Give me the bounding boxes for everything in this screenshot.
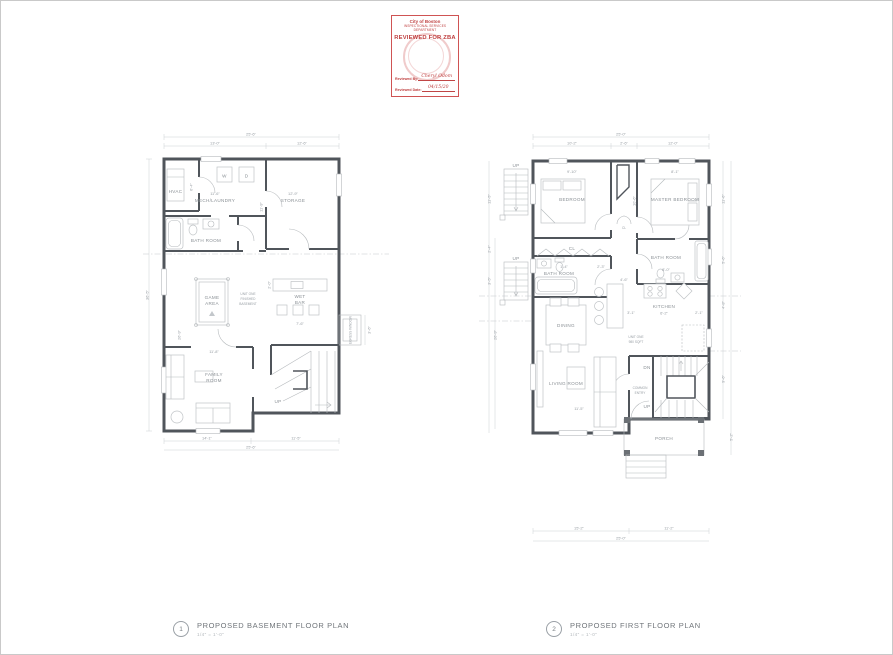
dim-top-3: 12'-0"	[668, 141, 679, 146]
dim-hvac: 6'-4"	[189, 183, 194, 191]
left-bathroom-fixtures	[535, 258, 577, 294]
stamp-reviewed-by-row: Reviewed By: Cheryl Odom	[395, 74, 455, 81]
side-stairs-up-label-2: UP	[513, 256, 520, 261]
toilet	[189, 225, 197, 235]
dim-egress: 3'-6"	[367, 326, 372, 334]
window-icon	[593, 431, 613, 436]
stairs-dn-label: DN	[643, 365, 650, 370]
first-floor-plan: 25'-0" 10'-2" 2'-6" 12'-0" 9'-10" BEDROO…	[479, 129, 741, 559]
dim-bottom-left: 14'-1"	[202, 436, 213, 441]
media-console	[537, 351, 543, 407]
room-label-bathroom: BATH ROOM	[191, 238, 221, 243]
dim-bottom-total: 25'-0"	[616, 536, 627, 541]
window-icon	[531, 184, 536, 204]
room-label-wetbar-2: BAR	[295, 300, 306, 305]
porch-post	[698, 417, 704, 423]
dim-bedroom: 9'-10"	[567, 169, 578, 174]
dim-right-5: 5'-2"	[729, 433, 734, 441]
dim-bottom-right: 11'-5"	[291, 436, 301, 441]
basement-note-2: FINISHED	[241, 297, 257, 301]
porch-post	[624, 417, 630, 423]
egress-window-label: EGRESS WINDOW	[349, 316, 353, 344]
porch	[624, 417, 704, 478]
corner-cabinet	[676, 283, 692, 299]
stool	[595, 302, 604, 311]
toilet-tank	[656, 279, 665, 283]
stool	[595, 288, 604, 297]
room-label-bathroom-left: BATH ROOM	[544, 271, 574, 276]
stove	[644, 284, 666, 298]
porch-label: PORCH	[655, 436, 673, 441]
bath-sink	[671, 273, 684, 282]
right-bathroom-fixtures	[656, 241, 708, 283]
dim-top-2: 2'-6"	[620, 141, 628, 146]
window-icon	[531, 364, 536, 390]
window-icon	[337, 174, 342, 196]
window-icon	[679, 159, 695, 164]
window-icon	[645, 159, 659, 164]
window-icon	[549, 159, 567, 164]
hvac-unit	[167, 169, 184, 201]
stool	[595, 316, 604, 325]
post	[500, 215, 505, 220]
dim-kitchen-left: 3'-1"	[627, 310, 635, 315]
dim-bath-right: 8'-0"	[662, 267, 670, 272]
plumbing-chase	[617, 165, 631, 224]
common-entry-label-1: COMMON	[633, 386, 649, 390]
dim-bottom-2: 11'-2"	[664, 526, 674, 531]
stamp-seal-inner-circle	[408, 38, 444, 74]
room-label-hvac: HVAC	[169, 189, 183, 194]
bath-sink	[203, 219, 219, 229]
porch-post	[698, 450, 704, 456]
reviewed-by-label: Reviewed By:	[395, 77, 418, 81]
dim-bottom-1: 15'-2"	[574, 526, 585, 531]
dim-wetbar-width: 7'-6"	[296, 321, 304, 326]
kitchen-fixtures	[595, 283, 705, 351]
room-label-wetbar-1: WET	[294, 294, 305, 299]
reviewed-by-value: Cheryl Odom	[418, 74, 455, 81]
dim-kitchen: 6'-2"	[660, 311, 668, 316]
dim-bottom-total: 25'-6"	[246, 445, 257, 450]
reviewed-date-value: 04/15/20	[422, 85, 455, 92]
first-floor-plan-title-block: 2 PROPOSED FIRST FLOOR PLAN 1/4" = 1'-0"	[546, 621, 701, 637]
dim-mech: 11'-6"	[210, 191, 220, 196]
dim-living: 11'-5"	[574, 406, 584, 411]
dim-family: 11'-8"	[209, 349, 219, 354]
master-bed	[651, 179, 699, 225]
dim-top-1: 10'-2"	[567, 141, 578, 146]
dim-storage-height: 11'-9"	[259, 202, 264, 212]
room-label-family-2: ROOM	[206, 378, 222, 383]
window-icon	[707, 184, 712, 206]
room-label-storage: STORAGE	[281, 198, 305, 203]
refrigerator	[682, 325, 704, 351]
kitchen-island	[607, 284, 623, 328]
dim-hall: 10'-6"	[632, 195, 637, 206]
stamp-org-line2: INSPECTIONAL SERVICES DEPARTMENT	[394, 24, 456, 32]
window-icon	[196, 429, 220, 434]
room-label-bathroom-right: BATH ROOM	[651, 255, 681, 260]
family-room-furniture	[166, 355, 230, 423]
common-entry-label-2: ENTRY	[635, 391, 647, 395]
washer-label: W	[222, 174, 227, 179]
dim-right-4: 9'-6"	[721, 375, 726, 383]
dim-bath-left: 1'-4"	[560, 264, 568, 269]
dim-left-inner: 26'-9"	[177, 329, 182, 340]
dim-left-3: 3'-5"	[487, 277, 492, 285]
basement-egress-window-well: EGRESS WINDOW	[339, 315, 361, 345]
exterior-side-stairs	[500, 169, 528, 305]
toilet-tank	[555, 258, 564, 262]
room-label-dining: DINING	[557, 323, 575, 328]
dim-storage: 12'-9"	[288, 191, 299, 196]
dim-left-1: 11'-5"	[487, 194, 492, 204]
room-label-family-1: FAMILY	[205, 372, 223, 377]
basement-plan-title-block: 1 PROPOSED BASEMENT FLOOR PLAN 1/4" = 1'…	[173, 621, 349, 637]
dim-right-1: 11'-6"	[721, 194, 726, 204]
dim-kitchen-right: 2'-1"	[695, 310, 703, 315]
window-icon	[201, 157, 221, 162]
basement-floor-plan: EGRESS WINDOW	[141, 129, 391, 461]
dim-top-total: 25'-6"	[246, 132, 257, 137]
dryer-label: D	[245, 174, 249, 179]
dim-wetbar-depth: 2'-0"	[267, 281, 272, 289]
toilet-tank	[188, 219, 198, 224]
room-label-game-1: GAME	[205, 295, 220, 300]
side-table	[171, 411, 183, 423]
closet-label-2: CL	[622, 226, 626, 230]
room-label-game-2: AREA	[205, 301, 219, 306]
room-label-living: LIVING ROOM	[549, 381, 583, 386]
main-stairs	[655, 356, 709, 418]
dim-left-4: 26'-9"	[493, 329, 498, 340]
living-room-furniture	[537, 351, 616, 427]
dim-2-3: 2'-3"	[597, 264, 605, 269]
post	[500, 300, 505, 305]
dim-left-total: 36'-5"	[145, 289, 150, 300]
room-label-kitchen: KITCHEN	[653, 304, 675, 309]
window-icon	[707, 329, 712, 347]
zba-review-stamp: City of Boston INSPECTIONAL SERVICES DEP…	[391, 15, 459, 97]
window-icon	[531, 259, 536, 273]
stairs-up-label: UP	[644, 404, 651, 409]
first-floor-plan-title: PROPOSED FIRST FLOOR PLAN	[570, 621, 701, 630]
dim-closet: 4'-6"	[620, 277, 628, 282]
window-icon	[162, 269, 167, 295]
dim-left-2: 2'-4"	[487, 245, 492, 253]
stamp-date-row: Reviewed Date: 04/15/20	[395, 85, 455, 92]
room-label-mech-laundry: MECH/LAUNDRY	[195, 198, 235, 203]
bath-sink	[537, 259, 551, 268]
reviewed-date-label: Reviewed Date:	[395, 88, 422, 92]
unit-note-1: UNIT ONE	[628, 335, 643, 339]
basement-plan-scale: 1/4" = 1'-0"	[197, 632, 349, 637]
dim-master: 8'-1"	[671, 169, 679, 174]
dim-right-2: 5'-6"	[721, 256, 726, 264]
side-stairs-up-label-1: UP	[513, 163, 520, 168]
basement-note-3: BASEMENT	[239, 302, 257, 306]
window-icon	[559, 431, 587, 436]
first-floor-plan-scale: 1/4" = 1'-0"	[570, 632, 701, 637]
closet-label: CL	[569, 246, 576, 251]
basement-note-1: UNIT ONE	[240, 292, 255, 296]
detail-number-circle: 2	[546, 621, 562, 637]
room-label-bedroom: BEDROOM	[559, 197, 585, 202]
unit-note-2: 980 SQFT	[629, 340, 644, 344]
porch-steps	[626, 455, 666, 478]
stamp-signature-rows: Reviewed By: Cheryl Odom Reviewed Date: …	[395, 70, 455, 92]
dim-right-3: 4'-8"	[721, 301, 726, 309]
dim-top-right: 12'-6"	[297, 141, 308, 146]
basement-plan-title: PROPOSED BASEMENT FLOOR PLAN	[197, 621, 349, 630]
room-label-master-bedroom: MASTER BEDROOM	[651, 197, 699, 202]
stairs-up-label: UP	[275, 399, 282, 404]
drawing-sheet: City of Boston INSPECTIONAL SERVICES DEP…	[0, 0, 893, 655]
dim-top-left: 13'-0"	[210, 141, 221, 146]
dim-top-total: 25'-0"	[616, 132, 627, 137]
detail-number-circle: 1	[173, 621, 189, 637]
